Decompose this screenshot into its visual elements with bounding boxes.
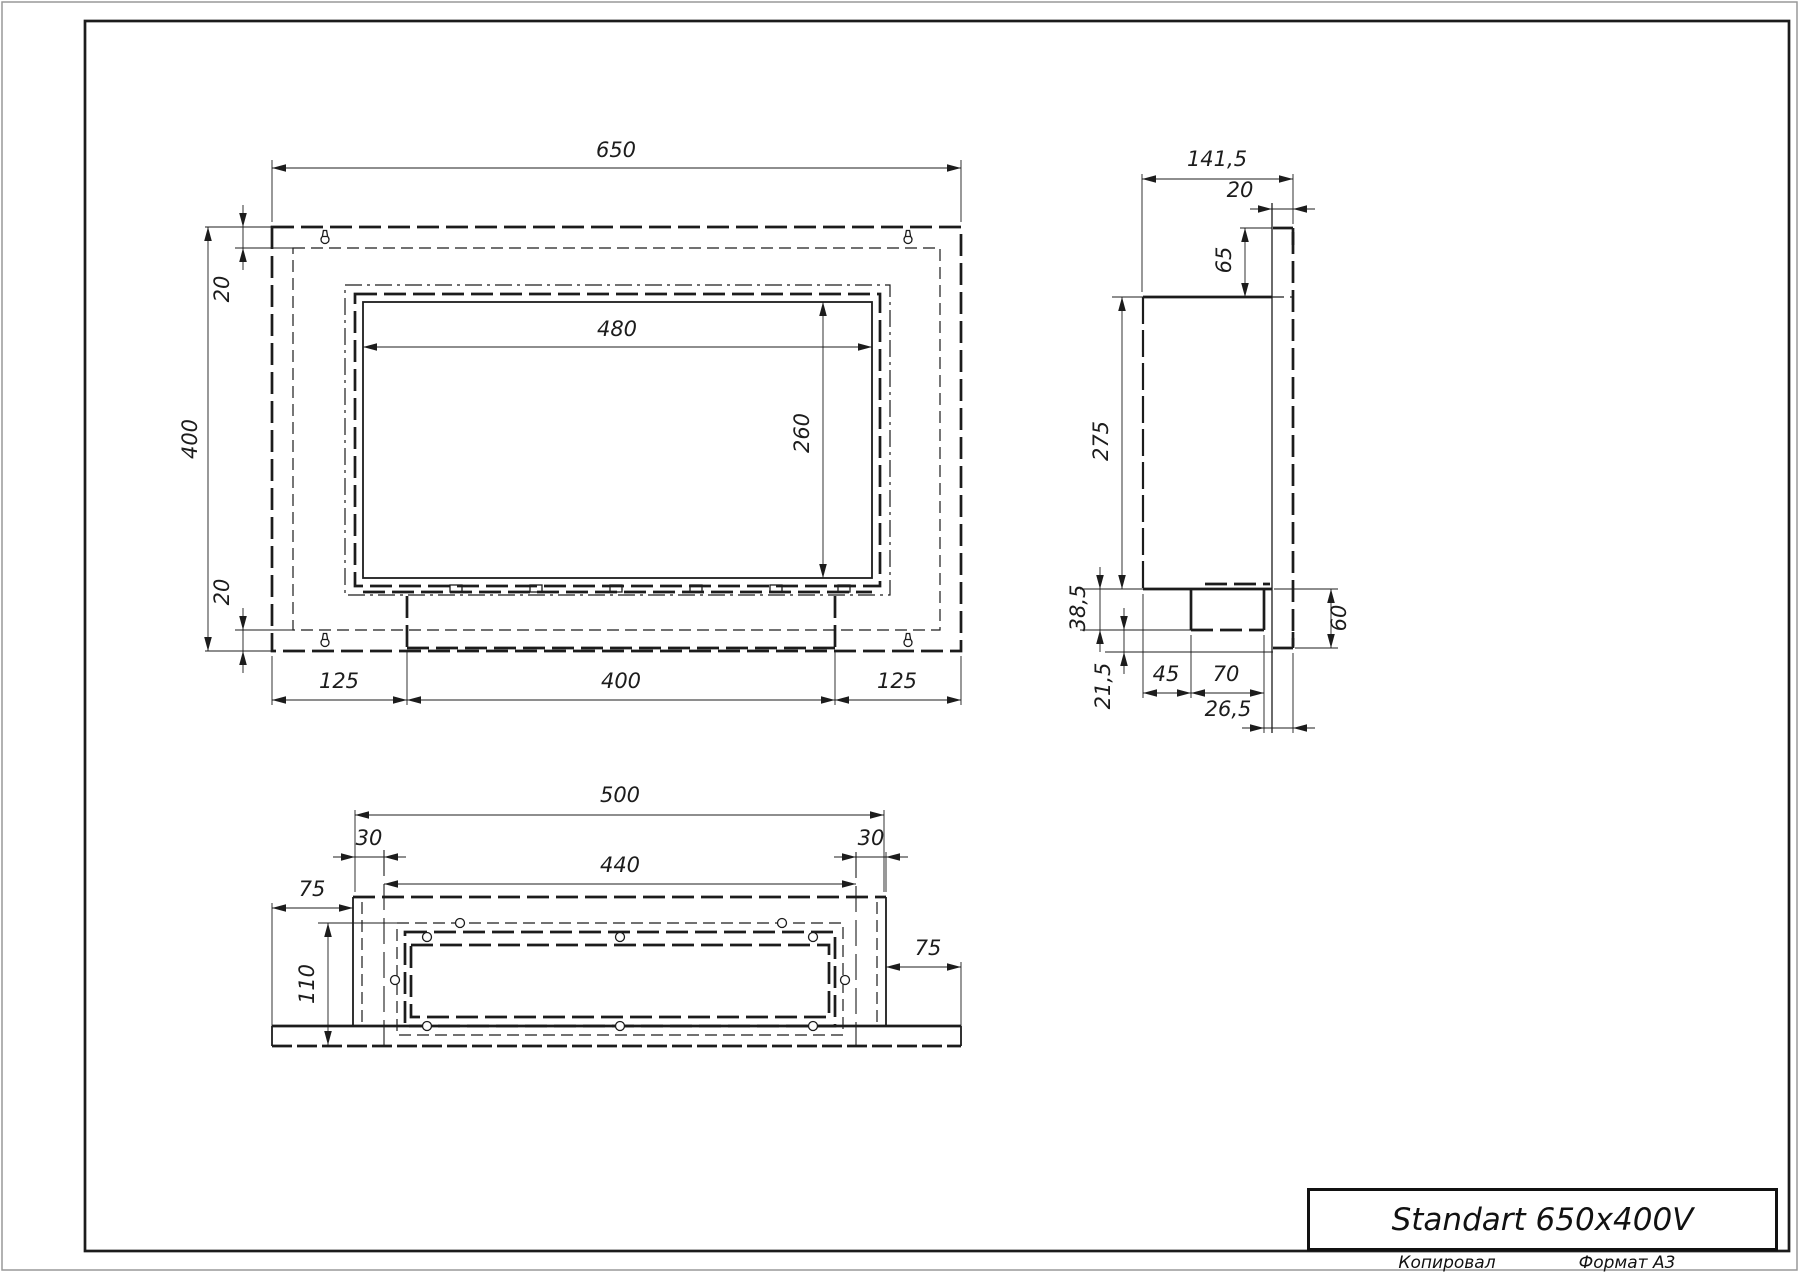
bottom-view-dim-label: 110 bbox=[295, 964, 319, 1004]
dim-arrow bbox=[272, 164, 286, 172]
front-view-dim-label: 20 bbox=[210, 276, 234, 303]
dim-arrow bbox=[204, 637, 212, 651]
dim-arrow bbox=[1177, 689, 1191, 697]
drawing-sheet: 6504002020480260125400125141,5206527538,… bbox=[0, 0, 1800, 1273]
front-view-keyhole-icon bbox=[322, 231, 327, 237]
dim-arrow bbox=[1120, 616, 1128, 630]
technical-drawing-canvas: 6504002020480260125400125141,5206527538,… bbox=[0, 0, 1800, 1273]
dim-arrow bbox=[842, 880, 856, 888]
dim-arrow bbox=[339, 904, 353, 912]
bottom-view-screw-hole bbox=[616, 933, 625, 942]
side-view-dim-label: 65 bbox=[1212, 247, 1236, 274]
bottom-view-screw-hole bbox=[809, 933, 818, 942]
side-view-dim-label: 275 bbox=[1089, 421, 1113, 461]
dim-arrow bbox=[821, 696, 835, 704]
front-view-dim-label: 400 bbox=[178, 419, 202, 459]
dim-arrow bbox=[1118, 575, 1126, 589]
front-view-outline bbox=[272, 227, 961, 651]
dim-arrow bbox=[1250, 724, 1264, 732]
footer-copied-label: Копировал bbox=[1398, 1253, 1495, 1273]
bottom-view-screw-hole bbox=[391, 976, 400, 985]
dim-arrow bbox=[239, 248, 247, 262]
dim-arrow bbox=[204, 227, 212, 241]
dim-arrow bbox=[1120, 652, 1128, 666]
dim-arrow bbox=[947, 696, 961, 704]
side-view-dim-label: 60 bbox=[1327, 605, 1351, 632]
dim-arrow bbox=[1279, 175, 1293, 183]
bottom-view-screw-hole bbox=[456, 919, 465, 928]
bottom-view-screw-hole bbox=[841, 976, 850, 985]
dim-arrow bbox=[1241, 283, 1249, 297]
bottom-view-dim-label: 75 bbox=[299, 877, 326, 901]
bottom-view-screw-hole bbox=[423, 933, 432, 942]
front-view-keyhole-icon bbox=[905, 231, 910, 237]
dim-arrow bbox=[272, 696, 286, 704]
bottom-view-screw-hole bbox=[809, 1022, 818, 1031]
dim-arrow bbox=[1118, 297, 1126, 311]
dim-arrow bbox=[1258, 205, 1272, 213]
dim-arrow bbox=[1327, 634, 1335, 648]
bottom-view-dim-label: 440 bbox=[600, 853, 640, 877]
dim-arrow bbox=[407, 696, 421, 704]
dim-arrow bbox=[239, 213, 247, 227]
dim-arrow bbox=[341, 853, 355, 861]
dim-arrow bbox=[239, 616, 247, 630]
dim-arrow bbox=[870, 811, 884, 819]
dim-arrow bbox=[1096, 575, 1104, 589]
dim-arrow bbox=[1191, 689, 1205, 697]
footer-format-label: Формат А3 bbox=[1579, 1253, 1676, 1273]
dim-arrow bbox=[947, 963, 961, 971]
dim-arrow bbox=[842, 853, 856, 861]
front-view-dim-label: 125 bbox=[877, 669, 917, 693]
bottom-view-screw-hole bbox=[616, 1022, 625, 1031]
dim-arrow bbox=[1293, 724, 1307, 732]
side-view-dim-label: 70 bbox=[1213, 662, 1240, 686]
dim-arrow bbox=[819, 564, 827, 578]
dim-arrow bbox=[363, 343, 377, 351]
dim-arrow bbox=[355, 811, 369, 819]
front-view-outline bbox=[293, 248, 940, 630]
drawing-title: Standart 650x400V bbox=[1392, 1202, 1694, 1238]
sheet-frame bbox=[85, 21, 1789, 1251]
bottom-view-outline bbox=[411, 945, 829, 1017]
dim-arrow bbox=[886, 853, 900, 861]
side-view-dim-label: 38,5 bbox=[1066, 585, 1090, 632]
dim-arrow bbox=[239, 651, 247, 665]
dim-arrow bbox=[858, 343, 872, 351]
front-view-keyhole-icon bbox=[322, 634, 327, 640]
dim-arrow bbox=[835, 696, 849, 704]
bottom-view-dim-label: 500 bbox=[600, 783, 640, 807]
bottom-view-dim-label: 30 bbox=[356, 826, 383, 850]
side-view-dim-label: 141,5 bbox=[1187, 147, 1247, 171]
dim-arrow bbox=[1293, 205, 1307, 213]
dim-arrow bbox=[384, 853, 398, 861]
dim-arrow bbox=[272, 904, 286, 912]
dim-arrow bbox=[1142, 175, 1156, 183]
dim-arrow bbox=[324, 1031, 332, 1045]
dim-arrow bbox=[819, 302, 827, 316]
bottom-view-dim-label: 30 bbox=[858, 826, 885, 850]
dim-arrow bbox=[1143, 689, 1157, 697]
front-view-dim-label: 400 bbox=[601, 669, 641, 693]
front-view-dim-label: 20 bbox=[210, 579, 234, 606]
front-view-dim-label: 260 bbox=[790, 413, 814, 453]
dim-arrow bbox=[324, 923, 332, 937]
side-view-dim-label: 20 bbox=[1227, 178, 1254, 202]
side-view-dim-label: 26,5 bbox=[1205, 697, 1252, 721]
dim-arrow bbox=[1250, 689, 1264, 697]
front-view-dim-label: 650 bbox=[596, 138, 636, 162]
side-view-dim-label: 45 bbox=[1153, 662, 1180, 686]
bottom-view-screw-hole bbox=[778, 919, 787, 928]
front-view-keyhole-icon bbox=[905, 634, 910, 640]
dim-arrow bbox=[1241, 228, 1249, 242]
dim-arrow bbox=[1327, 589, 1335, 603]
front-view-dim-label: 125 bbox=[319, 669, 359, 693]
dim-arrow bbox=[886, 963, 900, 971]
side-view-dim-label: 21,5 bbox=[1091, 663, 1115, 710]
bottom-view-screw-hole bbox=[423, 1022, 432, 1031]
bottom-view-dim-label: 75 bbox=[915, 936, 942, 960]
dim-arrow bbox=[384, 880, 398, 888]
dim-arrow bbox=[393, 696, 407, 704]
dim-arrow bbox=[1096, 630, 1104, 644]
dim-arrow bbox=[947, 164, 961, 172]
front-view-dim-label: 480 bbox=[597, 317, 637, 341]
title-block: Standart 650x400V bbox=[1307, 1188, 1778, 1251]
